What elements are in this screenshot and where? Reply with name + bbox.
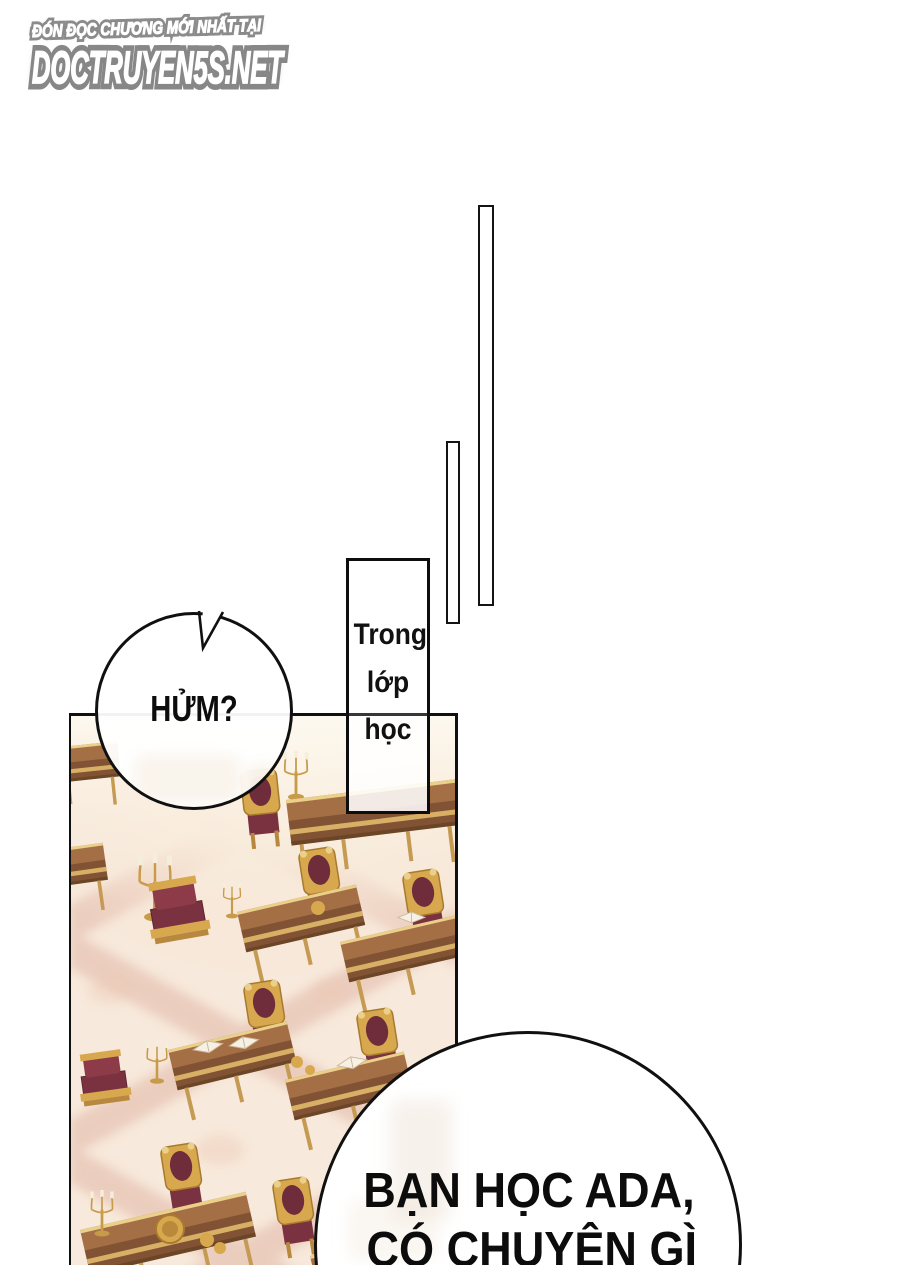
svg-text:BẠN HỌC ADA,: BẠN HỌC ADA, [363,1162,694,1217]
svg-text:CÓ CHUYỆN GÌ: CÓ CHUYỆN GÌ [366,1221,697,1265]
svg-text:HỬM?: HỬM? [150,688,237,730]
